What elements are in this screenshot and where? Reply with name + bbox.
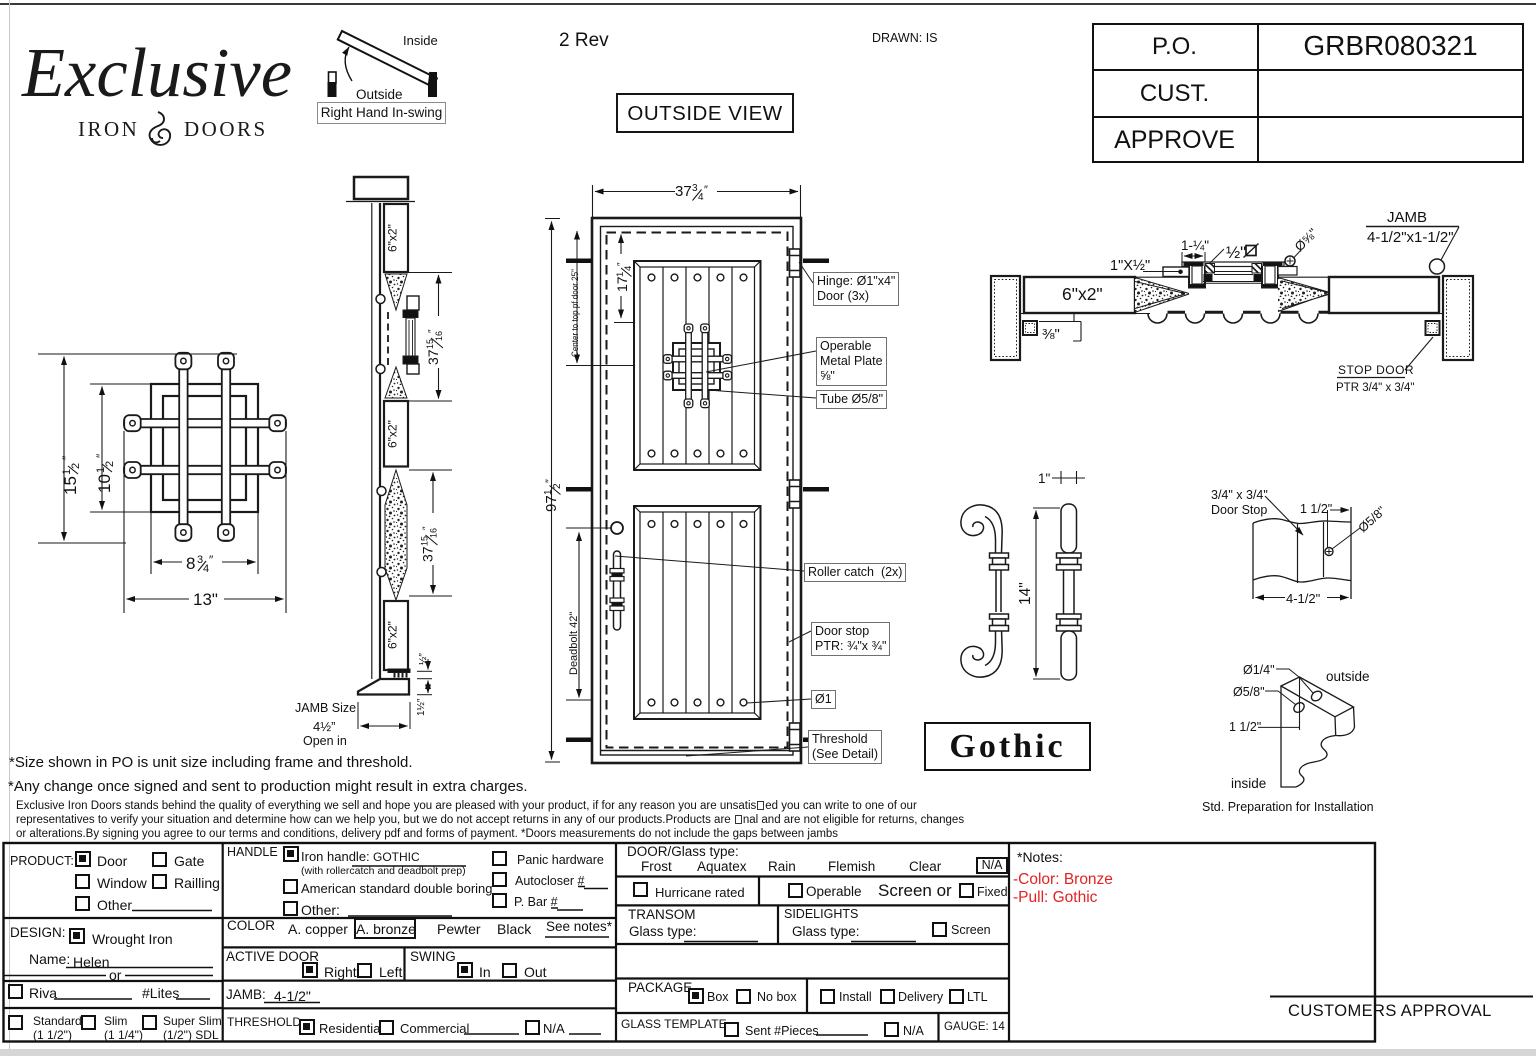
svg-text:37: 37 — [420, 546, 436, 562]
svg-text:JAMB: JAMB — [1387, 209, 1427, 226]
svg-text:6"x2": 6"x2" — [386, 420, 400, 448]
svg-text:″: ″ — [616, 262, 627, 266]
svg-text:Ø5/8": Ø5/8" — [1356, 504, 1389, 536]
svg-text:Door Stop: Door Stop — [1211, 503, 1267, 517]
svg-text:1½″: 1½″ — [416, 698, 427, 716]
svg-text:1": 1" — [1038, 471, 1051, 486]
svg-text:″: ″ — [94, 453, 108, 458]
svg-text:PTR 3/4" x 3/4": PTR 3/4" x 3/4" — [1336, 382, 1414, 394]
svg-text:Ø5/8": Ø5/8" — [1233, 685, 1265, 699]
svg-text:8: 8 — [186, 554, 195, 573]
svg-text:outside: outside — [1326, 669, 1370, 684]
svg-text:Ø⅝": Ø⅝" — [1292, 225, 1321, 254]
svg-text:1: 1 — [615, 272, 626, 277]
svg-text:3/4" x 3/4": 3/4" x 3/4" — [1211, 488, 1268, 502]
svg-text:4-1/2"x1-1/2": 4-1/2"x1-1/2" — [1367, 229, 1454, 246]
svg-text:15: 15 — [61, 476, 80, 495]
svg-text:13": 13" — [193, 590, 218, 609]
svg-text:″: ″ — [704, 184, 708, 196]
svg-text:½″: ½″ — [418, 653, 429, 665]
svg-text:inside: inside — [1231, 776, 1266, 791]
svg-text:97: 97 — [543, 495, 560, 512]
svg-text:2: 2 — [70, 463, 82, 469]
svg-text:1"X½": 1"X½" — [1110, 258, 1150, 274]
svg-text:STOP DOOR: STOP DOOR — [1338, 363, 1414, 377]
svg-text:4½”: 4½” — [313, 719, 335, 734]
svg-text:½": ½" — [1226, 243, 1246, 262]
svg-text:10: 10 — [95, 474, 114, 493]
svg-text:″: ″ — [427, 329, 438, 333]
svg-text:6"x2": 6"x2" — [386, 224, 400, 252]
svg-text:37: 37 — [675, 183, 692, 200]
svg-text:1 1/2": 1 1/2" — [1229, 720, 1261, 734]
svg-text:⅜": ⅜" — [1042, 326, 1060, 343]
svg-text:Ø1/4": Ø1/4" — [1243, 663, 1275, 677]
svg-text:JAMB Size: JAMB Size — [295, 701, 356, 715]
svg-text:1-¼": 1-¼" — [1181, 238, 1209, 253]
svg-text:1 1/2": 1 1/2" — [1300, 502, 1332, 516]
svg-text:Open in: Open in — [303, 734, 347, 748]
svg-text:37: 37 — [425, 349, 441, 365]
svg-text:14": 14" — [1017, 582, 1034, 605]
svg-text:17: 17 — [614, 276, 630, 292]
svg-text:6"x2": 6"x2" — [386, 621, 400, 649]
svg-text:″: ″ — [544, 479, 556, 483]
svg-text:Center to top pf door 25": Center to top pf door 25" — [570, 269, 581, 357]
svg-text:Std. Preparation for Installat: Std. Preparation for Installation — [1202, 800, 1374, 814]
svg-text:Exclusive: Exclusive — [21, 35, 292, 112]
svg-text:6"x2": 6"x2" — [1062, 284, 1103, 304]
svg-text:2: 2 — [104, 461, 116, 467]
svg-text:4-1/2": 4-1/2" — [1286, 591, 1321, 606]
svg-text:″: ″ — [60, 455, 74, 460]
svg-text:IRON: IRON — [78, 117, 139, 141]
svg-text:Deadbolt 42": Deadbolt 42" — [568, 612, 580, 675]
svg-text:DOORS: DOORS — [184, 117, 268, 141]
svg-text:″: ″ — [422, 526, 433, 530]
